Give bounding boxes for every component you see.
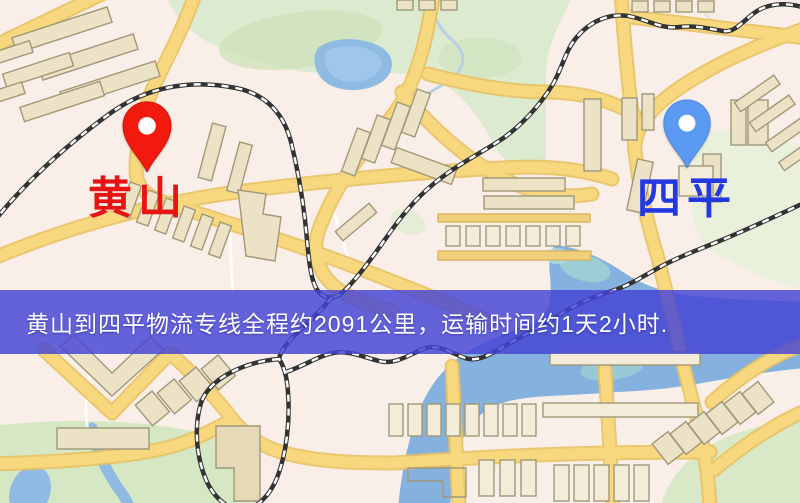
destination-city-label: 四平: [637, 177, 737, 221]
route-info-banner: 黄山到四平物流专线全程约2091公里，运输时间约1天2小时.: [0, 290, 800, 354]
route-info-text: 黄山到四平物流专线全程约2091公里，运输时间约1天2小时.: [26, 305, 668, 339]
map-canvas[interactable]: [0, 0, 800, 503]
map-viewport[interactable]: 黄山 四平 黄山到四平物流专线全程约2091公里，运输时间约1天2小时.: [0, 0, 800, 503]
origin-city-label: 黄山: [88, 177, 188, 221]
origin-pin-icon[interactable]: [121, 100, 173, 172]
destination-pin-icon[interactable]: [662, 98, 712, 168]
